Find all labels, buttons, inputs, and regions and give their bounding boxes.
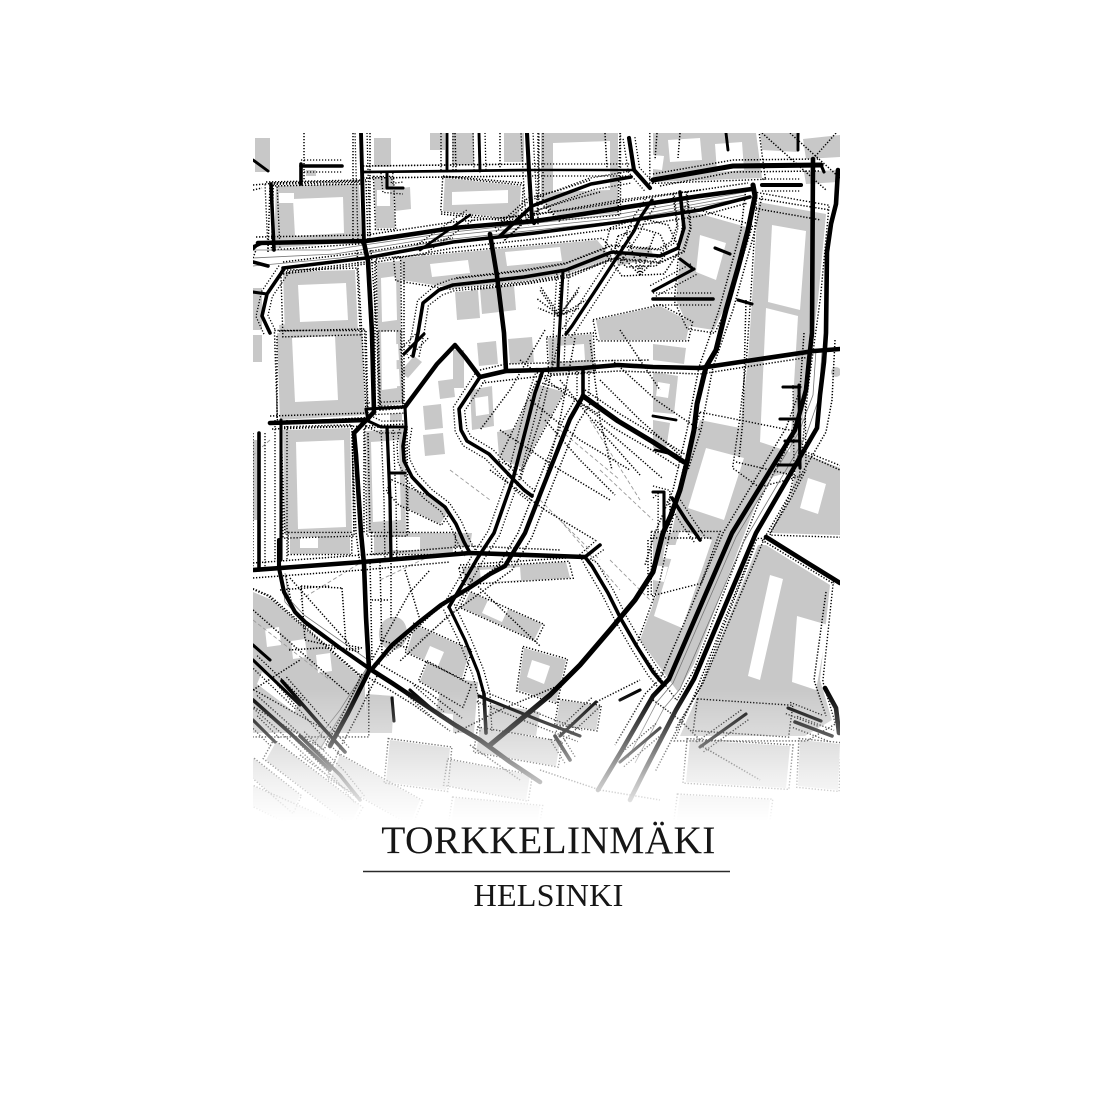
svg-text:TORKKELINMÄKI: TORKKELINMÄKI — [381, 818, 716, 862]
svg-text:HELSINKI: HELSINKI — [474, 877, 624, 913]
